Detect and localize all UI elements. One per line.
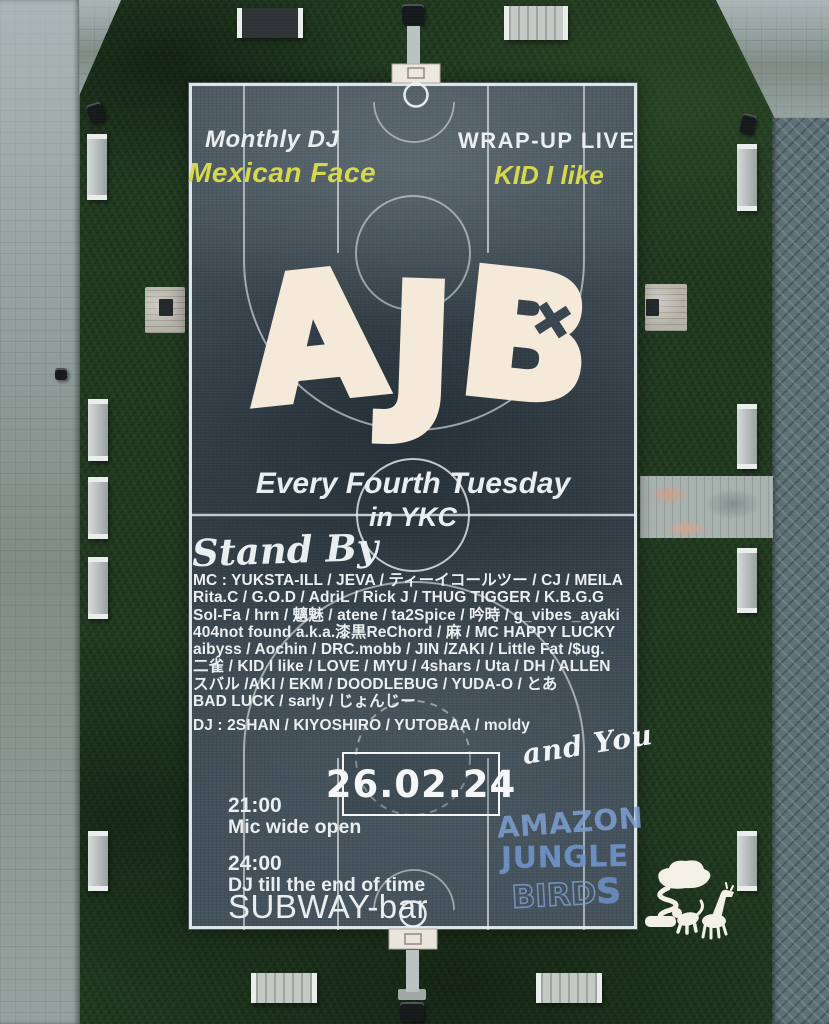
artist-left-name: Mexican Face <box>188 157 376 189</box>
logo-letter-j: J <box>387 255 456 442</box>
bench <box>737 831 757 891</box>
event-series-right-label: WRAP-UP LIVE <box>458 128 636 154</box>
concrete-patch <box>145 287 185 333</box>
logo-letter-a: A <box>240 240 389 438</box>
mc-line: 二雀 / KID I like / LOVE / MYU / 4shars / … <box>193 658 635 675</box>
patch-fixture <box>646 299 659 316</box>
event-date: 26.02.24 <box>326 763 517 806</box>
graffiti-line-3-solid: S <box>595 871 622 912</box>
bench <box>88 557 108 619</box>
event-series-left-label: Monthly DJ <box>205 126 339 154</box>
bench <box>88 399 108 461</box>
bench <box>737 548 757 613</box>
cobblestone-path-left <box>0 0 80 1024</box>
bench <box>87 134 107 200</box>
mc-line: 404not found a.k.a.漆黒ReChord / 麻 / MC HA… <box>193 624 635 641</box>
date-box: 26.02.24 <box>342 752 500 816</box>
bench <box>251 973 317 1003</box>
bench <box>737 404 757 469</box>
graffiti-line-3-outline: BIRD <box>511 875 598 915</box>
logo-letter-b: B <box>453 240 600 437</box>
bench <box>237 8 303 38</box>
mc-line: Sol-Fa / hrn / 魑魅 / atene / ta2Spice / 吟… <box>193 607 635 624</box>
schedule-line-1: Every Fourth Tuesday <box>188 467 638 501</box>
ground-fixture <box>55 368 67 380</box>
trash-bin <box>402 4 424 25</box>
bench <box>536 973 602 1003</box>
time-1-desc: Mic wide open <box>228 816 361 839</box>
bench <box>504 6 568 40</box>
mc-line: aibyss / Aochin / DRC.mobb / JIN /ZAKI /… <box>193 641 635 658</box>
bench <box>88 831 108 891</box>
bench <box>88 477 108 539</box>
venue-name: SUBWAY-bar <box>228 888 428 926</box>
dj-lineup-line: DJ : 2SHAN / KIYOSHIRO / YUTOBAA / moldy <box>193 717 530 735</box>
time-2: 24:00 <box>228 852 282 876</box>
paving-patch <box>640 476 773 538</box>
graffiti-line-3: BIRDS <box>498 872 634 916</box>
time-1: 21:00 <box>228 794 282 818</box>
graffiti-line-1: AMAZON <box>496 801 632 844</box>
aerial-poster: Monthly DJ WRAP-UP LIVE Mexican Face KID… <box>0 0 829 1024</box>
ajb-bubble-logo: A J B <box>232 246 608 451</box>
patch-fixture <box>159 299 173 316</box>
mc-line: Rita.C / G.O.D / AdriL / Rick J / THUG T… <box>193 589 635 606</box>
mc-line: MC : YUKSTA-ILL / JEVA / ティーイコールツー / CJ … <box>193 572 635 589</box>
trash-bin <box>400 1002 424 1022</box>
mc-line: スバル /AKI / EKM / DOODLEBUG / YUDA-O / とあ <box>193 676 635 693</box>
standby-heading: Stand By <box>191 525 379 575</box>
mc-line: BAD LUCK / sarly / じょんじー <box>193 693 635 710</box>
concrete-patch <box>645 284 687 331</box>
bench <box>737 144 757 211</box>
mc-lineup-list: MC : YUKSTA-ILL / JEVA / ティーイコールツー / CJ … <box>193 572 635 710</box>
herringbone-pavement-right <box>772 0 829 1024</box>
artist-right-name: KID I like <box>494 160 604 191</box>
crew-graffiti: AMAZON JUNGLE BIRDS <box>496 804 634 916</box>
